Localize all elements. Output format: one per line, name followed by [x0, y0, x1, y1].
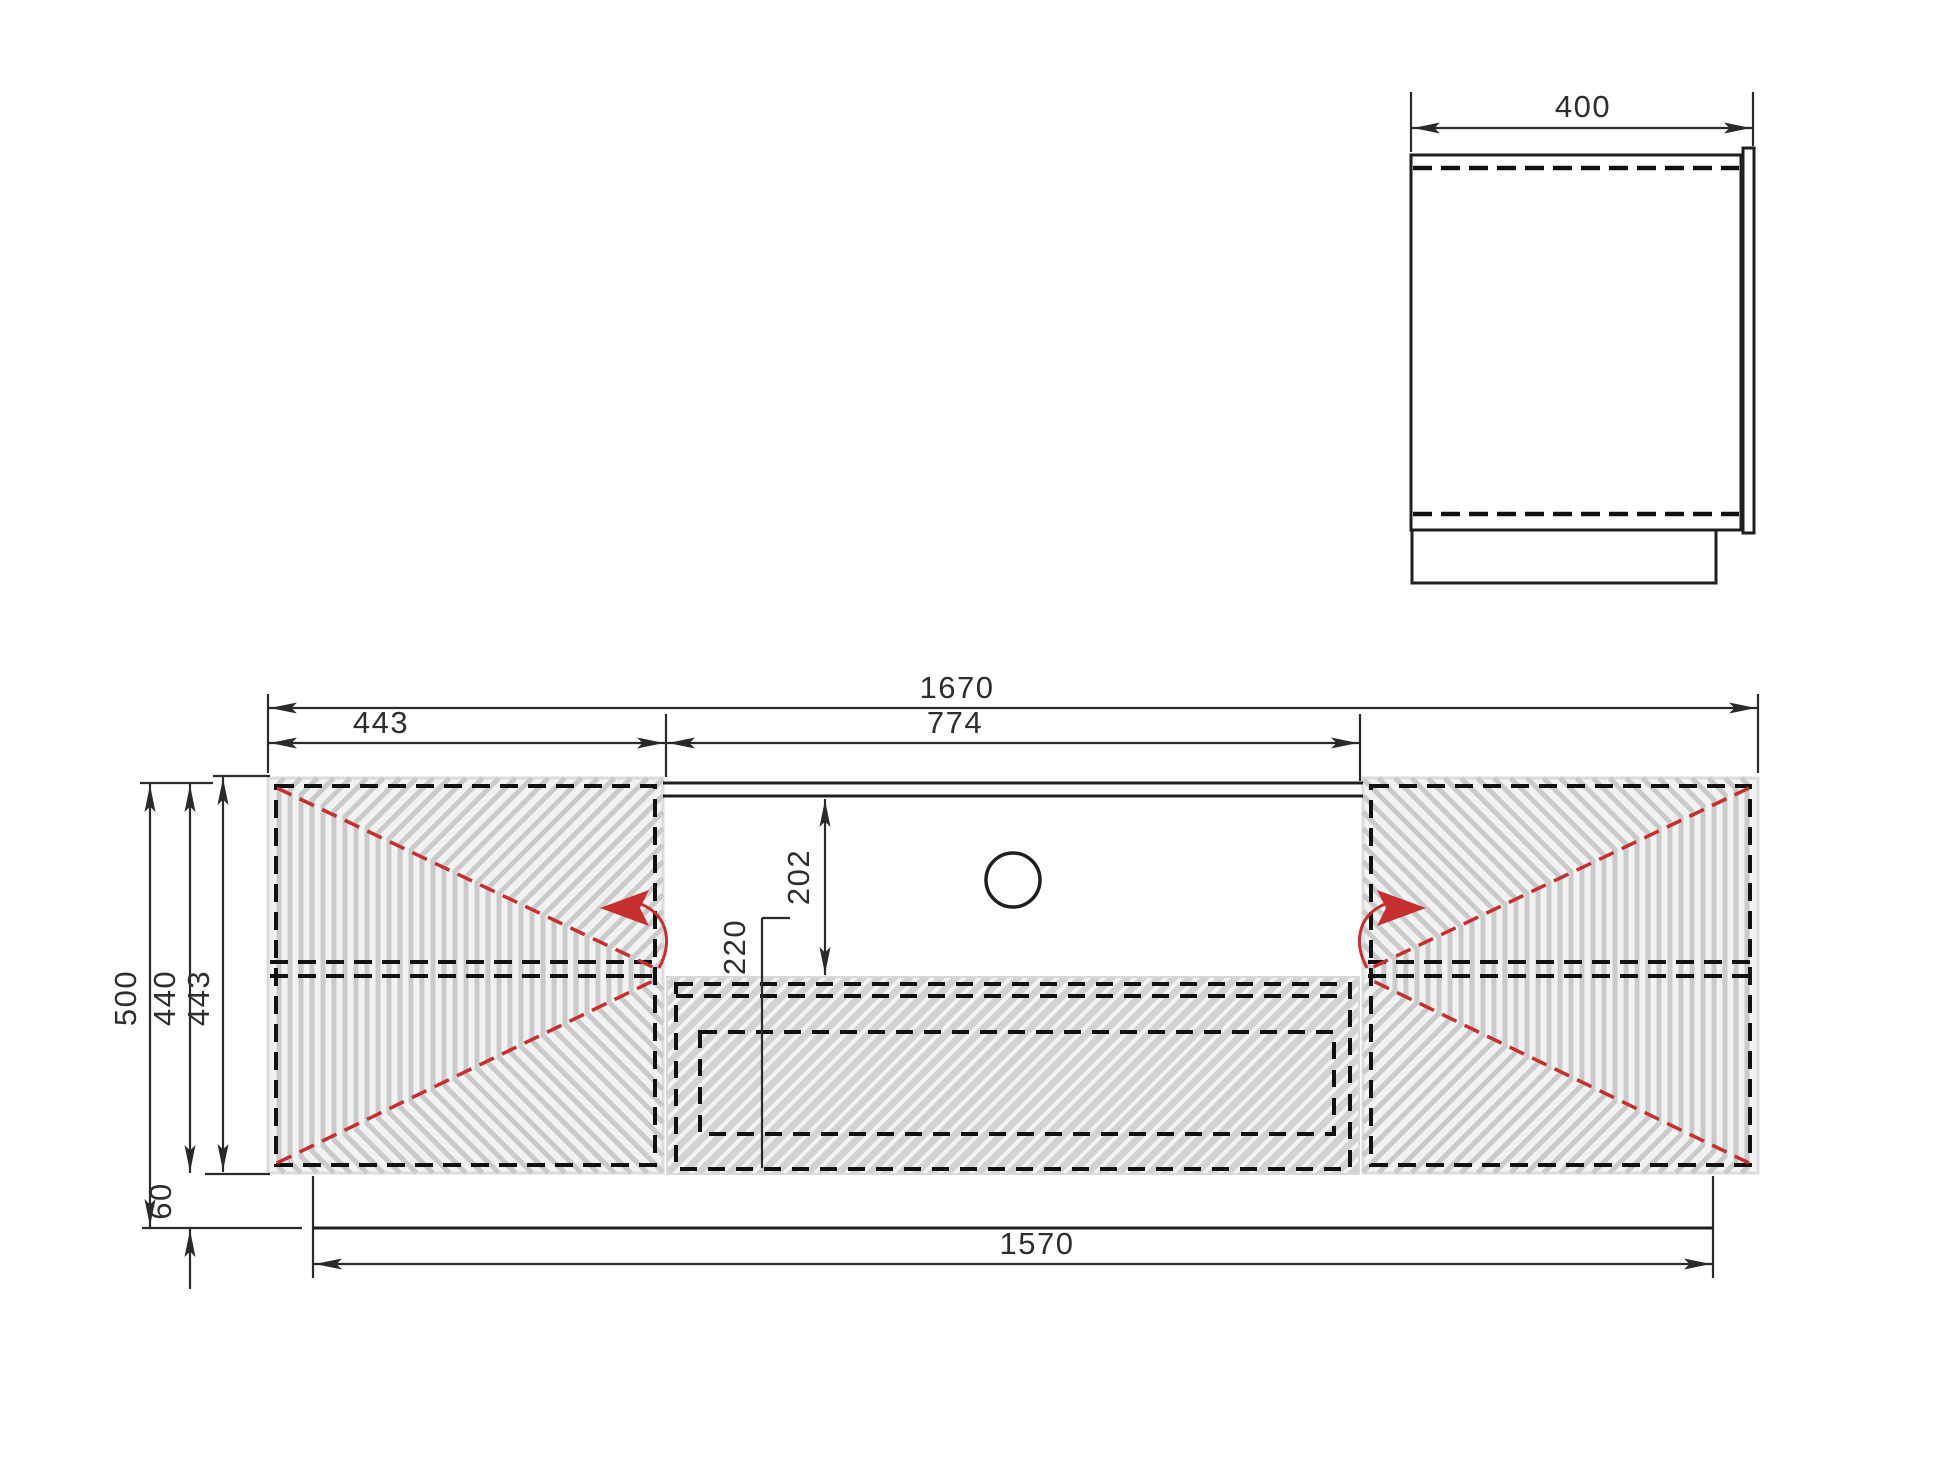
- dim-total-width-label: 1670: [920, 670, 995, 705]
- plinth: [142, 1176, 1713, 1278]
- dim-niche-width: 774: [666, 705, 1360, 781]
- furniture-technical-drawing: 400: [0, 0, 1944, 1458]
- drawer-front: [667, 977, 1359, 1174]
- dim-door-height: 443: [181, 776, 270, 1174]
- dim-carcass-height-label: 440: [147, 970, 182, 1026]
- dim-niche-width-label: 774: [927, 705, 983, 740]
- dim-plinth-width: 1570: [313, 1226, 1713, 1270]
- drawing-page: 400: [0, 0, 1944, 1458]
- dim-total-height-label: 500: [108, 970, 143, 1026]
- side-plinth: [1412, 530, 1716, 583]
- dim-left-door-width-label: 443: [353, 705, 409, 740]
- dim-plinth-width-label: 1570: [1000, 1226, 1075, 1261]
- side-view: 400: [1411, 89, 1754, 583]
- dim-total-width: 1670: [268, 670, 1758, 773]
- dim-depth-label: 400: [1555, 89, 1611, 124]
- dim-niche-height-label: 202: [781, 849, 816, 905]
- front-view: 1670 443 774 500 440: [108, 670, 1758, 1289]
- drawer-hatch-panel: [667, 977, 1359, 1174]
- dim-niche-height: 202: [781, 799, 831, 975]
- right-door-panel: [1363, 778, 1758, 1173]
- side-door-panel-edge: [1743, 148, 1754, 533]
- dim-left-door-width: 443: [268, 705, 666, 777]
- dim-depth: 400: [1411, 89, 1753, 152]
- cable-hole: [986, 853, 1040, 907]
- dim-plinth-height-label: 60: [143, 1182, 178, 1219]
- dim-drawer-front-height-label: 220: [717, 919, 752, 975]
- dim-plinth-height: 60: [143, 1182, 196, 1289]
- side-carcass: [1411, 155, 1741, 530]
- dim-door-height-label: 443: [181, 970, 216, 1026]
